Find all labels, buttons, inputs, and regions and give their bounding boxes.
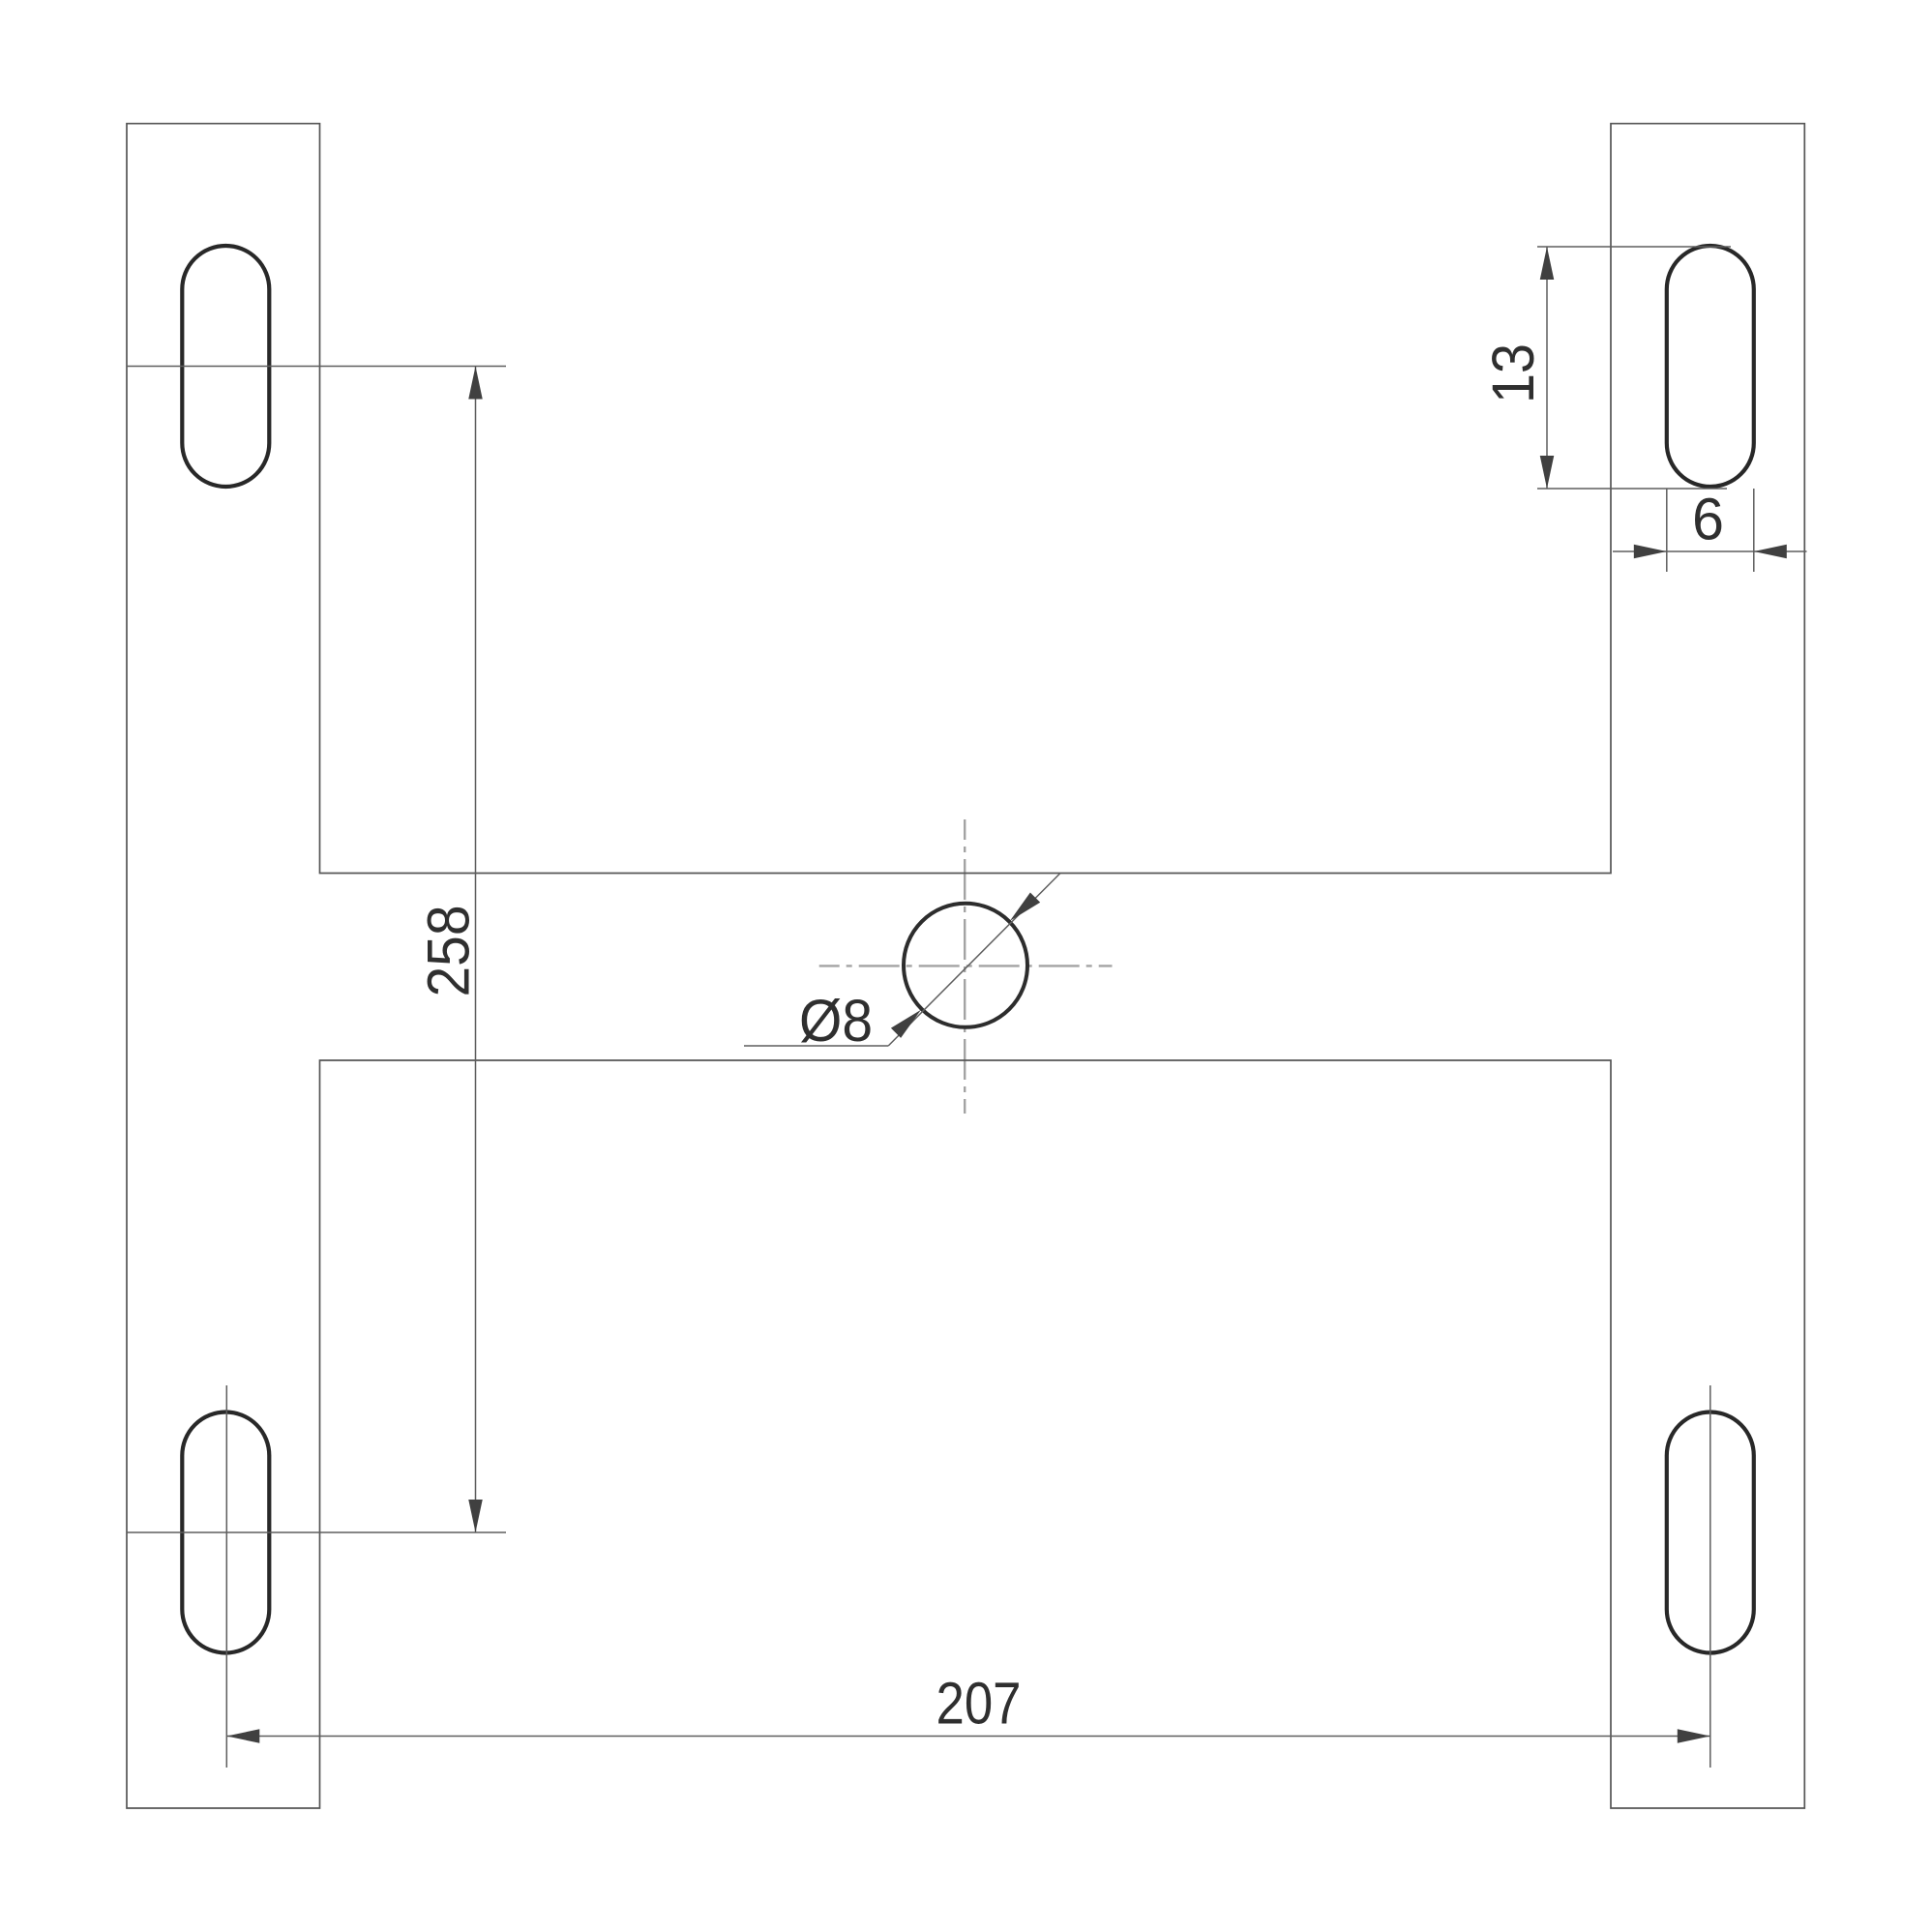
svg-text:258: 258 [415, 906, 481, 997]
svg-text:207: 207 [936, 1671, 1022, 1737]
svg-text:Ø8: Ø8 [799, 988, 873, 1054]
svg-text:6: 6 [1692, 487, 1724, 552]
svg-text:13: 13 [1480, 343, 1546, 403]
